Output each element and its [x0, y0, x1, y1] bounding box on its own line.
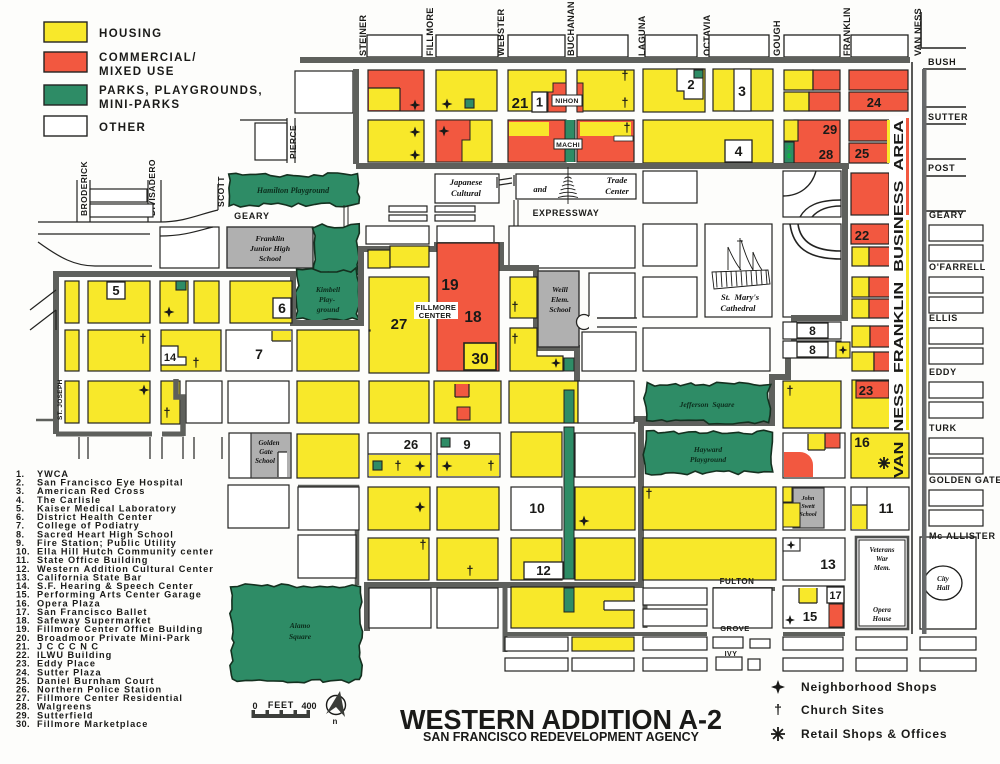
svg-text:†: †	[140, 332, 147, 346]
svg-text:†: †	[420, 538, 427, 552]
svg-text:Church Sites: Church Sites	[801, 703, 885, 717]
svg-text:Hamilton Playground: Hamilton Playground	[256, 186, 330, 195]
svg-text:Jefferson Square: Jefferson Square	[679, 400, 736, 409]
svg-text:Golden: Golden	[259, 439, 280, 447]
svg-text:Trade: Trade	[607, 175, 628, 185]
svg-text:15: 15	[803, 609, 817, 624]
svg-text:ELLIS: ELLIS	[929, 313, 958, 323]
svg-text:†: †	[467, 564, 474, 578]
svg-text:21: 21	[512, 95, 529, 112]
svg-text:30: 30	[471, 351, 488, 368]
svg-text:GOLDEN GATE: GOLDEN GATE	[929, 475, 1000, 485]
svg-text:Junior High: Junior High	[249, 244, 290, 253]
svg-text:11: 11	[879, 500, 894, 516]
svg-text:†: †	[164, 406, 171, 420]
svg-text:GEARY: GEARY	[929, 210, 964, 220]
svg-text:8: 8	[809, 343, 816, 357]
svg-text:Retail Shops & Offices: Retail Shops & Offices	[801, 727, 947, 741]
svg-text:Swett: Swett	[801, 504, 815, 510]
svg-text:400: 400	[301, 701, 316, 711]
svg-text:House: House	[872, 615, 892, 623]
svg-text:Veterans: Veterans	[870, 546, 895, 554]
svg-text:2: 2	[787, 145, 791, 152]
svg-text:30.: 30.	[16, 719, 30, 729]
svg-text:13: 13	[820, 556, 836, 572]
svg-text:BUCHANAN: BUCHANAN	[566, 1, 576, 56]
svg-text:Center: Center	[605, 186, 629, 196]
svg-text:School: School	[255, 457, 275, 465]
svg-text:4: 4	[735, 143, 743, 159]
svg-text:10: 10	[529, 500, 545, 516]
svg-text:BRODERICK: BRODERICK	[79, 160, 89, 216]
svg-text:City: City	[937, 575, 950, 583]
svg-text:Weill: Weill	[552, 285, 569, 294]
svg-text:3: 3	[738, 83, 746, 99]
svg-text:7: 7	[255, 346, 263, 362]
svg-text:Mc ALLISTER: Mc ALLISTER	[929, 531, 996, 541]
svg-text:School: School	[799, 512, 816, 518]
svg-text:GEARY: GEARY	[234, 211, 270, 221]
svg-text:Play-: Play-	[319, 295, 336, 304]
svg-text:Opera: Opera	[873, 606, 891, 614]
svg-text:0: 0	[252, 701, 257, 711]
svg-text:†: †	[774, 701, 782, 717]
svg-text:Cathedral: Cathedral	[721, 303, 757, 313]
svg-text:School: School	[259, 254, 282, 263]
svg-text:EDDY: EDDY	[929, 367, 957, 377]
svg-text:O'FARRELL: O'FARRELL	[929, 262, 986, 272]
svg-text:GROVE: GROVE	[720, 624, 750, 633]
svg-text:14: 14	[164, 352, 177, 364]
svg-text:†: †	[512, 300, 519, 314]
svg-text:John: John	[801, 496, 815, 502]
svg-text:Square: Square	[289, 632, 312, 641]
svg-text:29: 29	[823, 122, 837, 137]
svg-text:FEET: FEET	[268, 700, 294, 710]
svg-text:Playground: Playground	[690, 455, 727, 464]
svg-text:†: †	[646, 487, 653, 501]
svg-text:Franklin: Franklin	[255, 234, 284, 243]
svg-text:1: 1	[536, 95, 543, 110]
svg-text:†: †	[488, 459, 495, 473]
svg-text:†: †	[395, 459, 402, 473]
svg-text:COMMERCIAL/: COMMERCIAL/	[99, 52, 197, 64]
svg-text:POST: POST	[928, 163, 955, 173]
svg-text:22: 22	[855, 228, 869, 243]
svg-text:OTHER: OTHER	[99, 122, 146, 134]
svg-text:†: †	[787, 384, 794, 398]
svg-text:Hall: Hall	[936, 584, 950, 592]
svg-text:Fillmore Marketplace: Fillmore Marketplace	[37, 719, 148, 729]
svg-text:†: †	[624, 121, 631, 135]
svg-text:Hayward: Hayward	[693, 445, 723, 454]
svg-text:†: †	[512, 332, 519, 346]
svg-text:PIERCE: PIERCE	[288, 125, 298, 159]
svg-text:†: †	[622, 69, 629, 83]
svg-text:BUSH: BUSH	[928, 57, 956, 67]
svg-text:HOUSING: HOUSING	[99, 28, 162, 40]
svg-text:St. Mary's: St. Mary's	[721, 292, 760, 302]
svg-text:24: 24	[867, 95, 882, 110]
svg-text:GOUGH: GOUGH	[772, 20, 782, 56]
svg-text:26: 26	[404, 437, 418, 452]
svg-text:5: 5	[112, 283, 119, 298]
svg-text:Cultural: Cultural	[451, 188, 481, 198]
svg-text:and: and	[533, 184, 547, 194]
svg-text:MACHI: MACHI	[556, 142, 580, 149]
svg-text:Elem.: Elem.	[550, 295, 569, 304]
svg-text:12: 12	[536, 563, 550, 578]
svg-text:Mem.: Mem.	[873, 564, 891, 572]
svg-text:CENTER: CENTER	[419, 311, 452, 320]
svg-text:Gate: Gate	[259, 448, 273, 456]
svg-text:19: 19	[441, 277, 459, 294]
svg-text:23: 23	[859, 383, 873, 398]
svg-text:Alamo: Alamo	[289, 621, 311, 630]
svg-text:18: 18	[464, 309, 482, 326]
svg-text:MINI-PARKS: MINI-PARKS	[99, 99, 181, 111]
svg-text:SUTTER: SUTTER	[928, 112, 968, 122]
svg-text:TURK: TURK	[929, 423, 957, 433]
svg-text:†: †	[193, 356, 200, 370]
svg-text:ground: ground	[316, 305, 340, 314]
svg-text:6: 6	[278, 300, 286, 316]
svg-text:Neighborhood Shops: Neighborhood Shops	[801, 680, 937, 694]
svg-text:8: 8	[809, 324, 816, 338]
svg-text:16: 16	[854, 434, 870, 450]
svg-text:0: 0	[787, 153, 791, 160]
svg-text:17: 17	[829, 590, 841, 602]
svg-text:†: †	[622, 96, 629, 110]
svg-text:9: 9	[463, 437, 470, 452]
svg-text:FULTON: FULTON	[720, 577, 755, 586]
svg-text:27: 27	[391, 316, 408, 333]
svg-text:28: 28	[819, 147, 833, 162]
svg-text:SAN FRANCISCO REDEVELOPMENT AG: SAN FRANCISCO REDEVELOPMENT AGENCY	[423, 730, 700, 744]
svg-text:School: School	[549, 305, 571, 314]
svg-text:War: War	[876, 555, 888, 563]
svg-text:PARKS, PLAYGROUNDS,: PARKS, PLAYGROUNDS,	[99, 85, 263, 97]
svg-text:EXPRESSWAY: EXPRESSWAY	[533, 208, 600, 218]
svg-text:n: n	[333, 717, 338, 726]
svg-text:MIXED USE: MIXED USE	[99, 66, 175, 78]
svg-text:Kimbell: Kimbell	[315, 285, 341, 294]
svg-text:Japanese: Japanese	[449, 177, 483, 187]
svg-text:NIHON: NIHON	[555, 98, 578, 105]
svg-text:VAN NESS FRANKLIN BUSINESS: VAN NESS FRANKLIN BUSINESS AREA	[892, 120, 906, 478]
svg-text:2: 2	[687, 77, 694, 92]
svg-text:FILLMORE: FILLMORE	[425, 7, 435, 56]
svg-text:25: 25	[855, 146, 869, 161]
svg-text:ST. JOSEPH: ST. JOSEPH	[57, 379, 64, 420]
